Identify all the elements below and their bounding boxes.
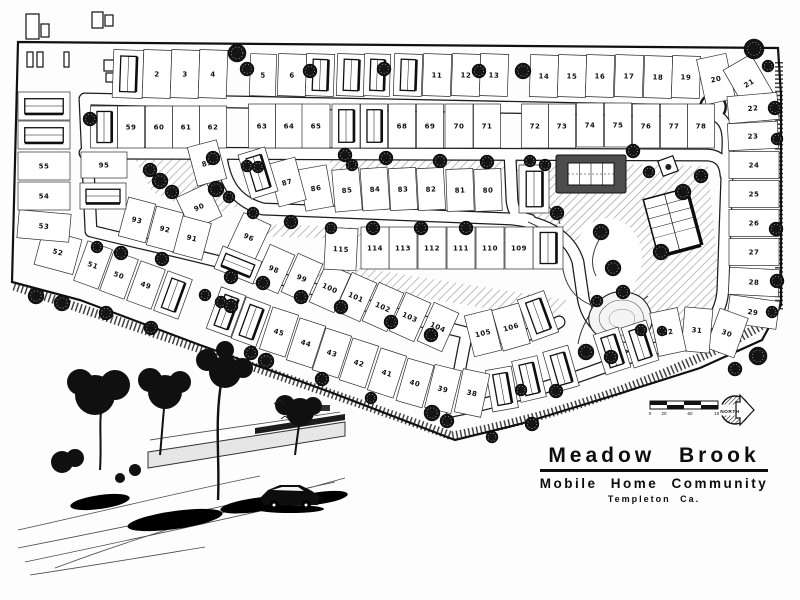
lot-number: 12 (460, 71, 471, 79)
tree (749, 347, 767, 365)
lot-number: 28 (748, 278, 759, 287)
lot-83: 83 (388, 167, 417, 210)
lot-113: 113 (389, 227, 417, 269)
tree (771, 133, 783, 145)
lot-110: 110 (476, 227, 504, 269)
lot-55: 55 (18, 152, 70, 180)
tree (365, 392, 377, 404)
scale-bar: 0 20 60 100 (649, 401, 723, 416)
lot-number: 73 (557, 123, 568, 131)
tree (549, 384, 563, 398)
tree (762, 60, 774, 72)
tree (199, 289, 211, 301)
lot-number: 59 (126, 124, 137, 132)
tree (223, 191, 235, 203)
lot-number: 113 (395, 245, 411, 253)
lot-5: 5 (249, 54, 276, 97)
lot-75: 75 (605, 103, 632, 147)
home-footprint (400, 59, 417, 91)
lot-18: 18 (643, 56, 672, 99)
lot-number: 82 (425, 185, 436, 194)
tree (165, 185, 179, 199)
lot-number: 62 (208, 124, 219, 132)
tree (694, 169, 708, 183)
lot-number: 22 (747, 104, 758, 113)
lot-78: 78 (688, 104, 715, 148)
tree (114, 246, 128, 260)
home-footprint (367, 110, 382, 143)
lot-77: 77 (661, 104, 688, 148)
tree (377, 62, 391, 76)
lot-31: 31 (681, 307, 713, 353)
lot-70: 70 (445, 104, 473, 148)
lot-number: 5 (260, 72, 266, 80)
tree (525, 417, 539, 431)
tree (247, 207, 259, 219)
swimming-pool (556, 155, 626, 193)
tree (653, 244, 669, 260)
lot-3: 3 (170, 50, 200, 99)
lot-number: 61 (181, 124, 192, 132)
tree (224, 299, 238, 313)
tree (578, 344, 594, 360)
home-footprint (25, 99, 63, 115)
tree (657, 326, 667, 336)
home-footprint (86, 189, 120, 204)
tree (744, 39, 764, 59)
lot-number: 19 (680, 73, 691, 81)
lot-number: 68 (397, 123, 408, 131)
lot-number: 16 (594, 72, 605, 80)
tree (28, 288, 44, 304)
tree (99, 306, 113, 320)
lot-71: 71 (474, 104, 501, 148)
lot-4: 4 (198, 50, 228, 99)
lot-number: 25 (749, 191, 760, 199)
tree (325, 222, 337, 234)
lot-63: 63 (249, 104, 276, 148)
tree (414, 221, 428, 235)
home-footprint (25, 128, 63, 144)
tree (155, 252, 169, 266)
lot-74: 74 (577, 103, 604, 147)
tree (91, 241, 103, 253)
scale-label-0: 0 (649, 411, 652, 416)
home-footprint (339, 110, 355, 143)
lot-number: 26 (749, 220, 760, 228)
tree (766, 306, 778, 318)
lot-number: 4 (210, 71, 216, 79)
lot-16: 16 (585, 55, 614, 98)
title-block: Meadow Brook Mobile Home Community Templ… (528, 444, 780, 504)
lot-81: 81 (446, 169, 474, 212)
tree (144, 321, 158, 335)
lot-number: 84 (369, 185, 380, 194)
tree (728, 362, 742, 376)
tree (480, 155, 494, 169)
lot-72: 72 (522, 104, 549, 148)
lot-number: 14 (538, 72, 549, 80)
lot-number: 110 (482, 245, 498, 253)
lot-number: 76 (641, 123, 652, 131)
lot-25: 25 (729, 181, 779, 208)
lot-number: 2 (154, 71, 160, 79)
lot-number: 109 (511, 245, 527, 253)
lot-69: 69 (417, 104, 444, 148)
car (256, 485, 324, 513)
lot-number: 77 (669, 123, 680, 131)
north-arrow: NORTH (719, 395, 754, 425)
lot-number: 60 (154, 124, 165, 132)
lot-number: 27 (749, 249, 760, 257)
tree (346, 159, 358, 171)
tree (152, 173, 168, 189)
lot-number: 17 (623, 72, 634, 80)
lot-number: 85 (341, 186, 352, 195)
lot-76: 76 (633, 104, 660, 148)
site-plan-svg: 1234567891011121314151617181920212223242… (0, 0, 800, 600)
lot-80: 80 (474, 169, 502, 212)
community-name: Meadow Brook (540, 444, 767, 472)
tree (252, 161, 264, 173)
tree (486, 431, 498, 443)
tree (379, 151, 393, 165)
lot-95: 95 (81, 152, 127, 178)
lot-65: 65 (302, 104, 330, 148)
lot-85: 85 (332, 168, 363, 212)
tree (83, 112, 97, 126)
tree (550, 206, 564, 220)
tree (228, 44, 246, 62)
tree (605, 260, 621, 276)
lot-number: 11 (431, 71, 442, 79)
lot-number: 115 (333, 245, 350, 254)
lot-17: 17 (614, 55, 643, 98)
tree (616, 285, 630, 299)
lot-number: 63 (257, 123, 268, 131)
tree (256, 276, 270, 290)
tree (284, 215, 298, 229)
lot-54: 54 (18, 182, 70, 210)
tree (768, 101, 782, 115)
tree (440, 414, 454, 428)
lot-number: 64 (284, 123, 295, 131)
tree (244, 346, 258, 360)
lot-number: 80 (483, 186, 494, 194)
lot-number: 78 (696, 123, 707, 131)
lot-number: 74 (585, 122, 596, 130)
tree (643, 166, 655, 178)
home-footprint (343, 59, 360, 91)
tree (593, 224, 609, 240)
tree (294, 290, 308, 304)
scale-label-20: 20 (661, 411, 667, 416)
lot-109: 109 (505, 227, 533, 269)
tree (424, 328, 438, 342)
home-footprint (540, 232, 557, 263)
tree (54, 295, 70, 311)
tree (424, 405, 440, 421)
site-plan-page: 1234567891011121314151617181920212223242… (0, 0, 800, 600)
lot-number: 112 (424, 245, 440, 253)
lot-number: 75 (613, 122, 624, 130)
tree (591, 295, 603, 307)
lot-2: 2 (142, 50, 172, 99)
lot-73: 73 (549, 104, 576, 148)
lot-number: 114 (367, 245, 383, 253)
lot-number: 55 (39, 163, 50, 171)
scale-label-60: 60 (687, 411, 693, 416)
lot-19: 19 (671, 56, 700, 99)
lot-11: 11 (422, 54, 451, 97)
community-type: Mobile Home Community (528, 476, 780, 491)
lot-24: 24 (729, 152, 779, 179)
lot-84: 84 (360, 167, 390, 211)
tree (626, 144, 640, 158)
lot-number: 70 (454, 123, 465, 131)
tree (635, 324, 647, 336)
tree (604, 350, 618, 364)
home-footprint (526, 171, 543, 207)
lot-64: 64 (276, 104, 303, 148)
home-footprint (120, 56, 138, 92)
lot-number: 23 (747, 132, 758, 141)
lot-61: 61 (173, 106, 200, 148)
tree (241, 160, 253, 172)
north-label: NORTH (720, 409, 740, 415)
tree (224, 270, 238, 284)
lot-number: 6 (289, 72, 295, 80)
lot-number: 31 (691, 326, 702, 335)
tree (258, 353, 274, 369)
lot-number: 29 (747, 308, 759, 317)
lot-number: 71 (482, 123, 493, 131)
tree (240, 62, 254, 76)
lot-number: 65 (311, 123, 322, 131)
lot-53: 53 (17, 210, 71, 242)
tree (206, 151, 220, 165)
lot-number: 18 (652, 73, 663, 81)
tree (459, 221, 473, 235)
lot-number: 81 (455, 186, 466, 194)
lot-number: 53 (38, 222, 49, 231)
tree (675, 184, 691, 200)
lot-27: 27 (729, 239, 779, 266)
home-footprint (97, 111, 112, 142)
entrance-illustration (18, 341, 349, 575)
tree (315, 372, 329, 386)
tree (515, 63, 531, 79)
lot-number: 111 (453, 245, 469, 253)
lot-number: 95 (99, 162, 110, 170)
lot-number: 54 (39, 193, 50, 201)
lot-number: 69 (425, 123, 436, 131)
lot-59: 59 (118, 106, 145, 148)
lot-number: 24 (749, 162, 760, 170)
lot-23: 23 (727, 121, 778, 151)
tree (524, 155, 536, 167)
tree (208, 181, 224, 197)
tree (303, 64, 317, 78)
lot-82: 82 (416, 167, 445, 210)
lot-number: 83 (397, 185, 408, 194)
lot-6: 6 (277, 54, 306, 97)
lot-68: 68 (389, 104, 416, 148)
tree (472, 64, 486, 78)
community-location: Templeton Ca. (528, 494, 780, 504)
lot-number: 3 (182, 71, 188, 79)
lot-15: 15 (557, 55, 586, 98)
lot-60: 60 (146, 106, 173, 148)
tree (539, 159, 551, 171)
lot-number: 13 (488, 71, 499, 79)
tree (515, 384, 527, 396)
tree (769, 222, 783, 236)
tree (433, 154, 447, 168)
tree (366, 221, 380, 235)
lot-number: 15 (566, 72, 577, 80)
lot-14: 14 (529, 55, 558, 98)
lot-number: 72 (530, 123, 541, 131)
tree (334, 300, 348, 314)
tree (770, 274, 784, 288)
tree (384, 315, 398, 329)
